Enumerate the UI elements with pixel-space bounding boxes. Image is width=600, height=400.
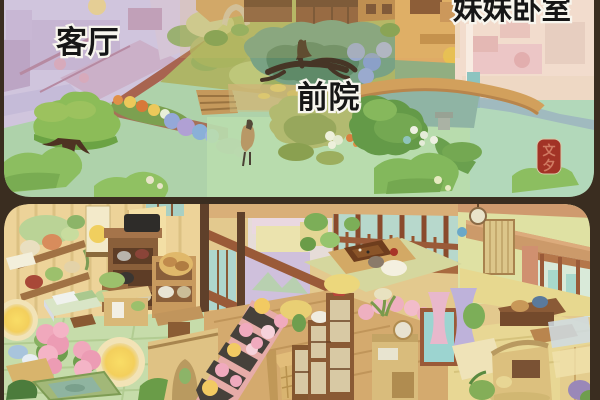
- svg-text:夕: 夕: [542, 158, 555, 173]
- svg-text:妹妹卧室: 妹妹卧室: [453, 0, 571, 26]
- svg-text:客厅: 客厅: [56, 25, 119, 60]
- svg-text:前院: 前院: [297, 80, 360, 115]
- svg-text:文: 文: [542, 143, 556, 158]
